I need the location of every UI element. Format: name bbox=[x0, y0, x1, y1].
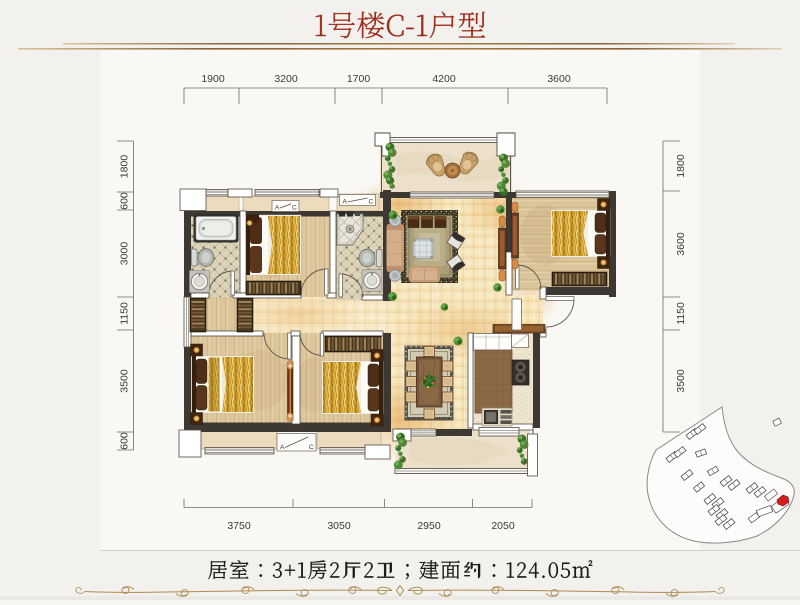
svg-text:1900: 1900 bbox=[201, 73, 225, 85]
svg-text:2950: 2950 bbox=[417, 520, 441, 532]
svg-text:A: A bbox=[343, 198, 348, 205]
svg-text:1150: 1150 bbox=[675, 302, 687, 325]
svg-text:C: C bbox=[369, 198, 374, 205]
svg-text:600: 600 bbox=[119, 432, 131, 450]
svg-text:3750: 3750 bbox=[227, 520, 251, 532]
svg-text:600: 600 bbox=[119, 192, 131, 210]
svg-text:2050: 2050 bbox=[491, 520, 515, 532]
svg-text:A: A bbox=[280, 444, 285, 451]
svg-text:3050: 3050 bbox=[327, 520, 351, 532]
svg-text:4200: 4200 bbox=[432, 73, 456, 85]
svg-text:1800: 1800 bbox=[675, 154, 687, 178]
svg-text:3000: 3000 bbox=[119, 242, 131, 266]
svg-text:1700: 1700 bbox=[347, 73, 371, 85]
svg-text:C: C bbox=[292, 204, 297, 211]
svg-text:1150: 1150 bbox=[119, 302, 131, 325]
svg-text:3600: 3600 bbox=[675, 232, 687, 256]
svg-text:C: C bbox=[309, 444, 314, 451]
svg-text:3500: 3500 bbox=[119, 369, 131, 393]
svg-text:3500: 3500 bbox=[675, 369, 687, 393]
svg-text:A: A bbox=[275, 204, 280, 211]
svg-text:3200: 3200 bbox=[274, 73, 298, 85]
svg-text:1800: 1800 bbox=[119, 155, 131, 179]
svg-text:3600: 3600 bbox=[547, 73, 571, 85]
